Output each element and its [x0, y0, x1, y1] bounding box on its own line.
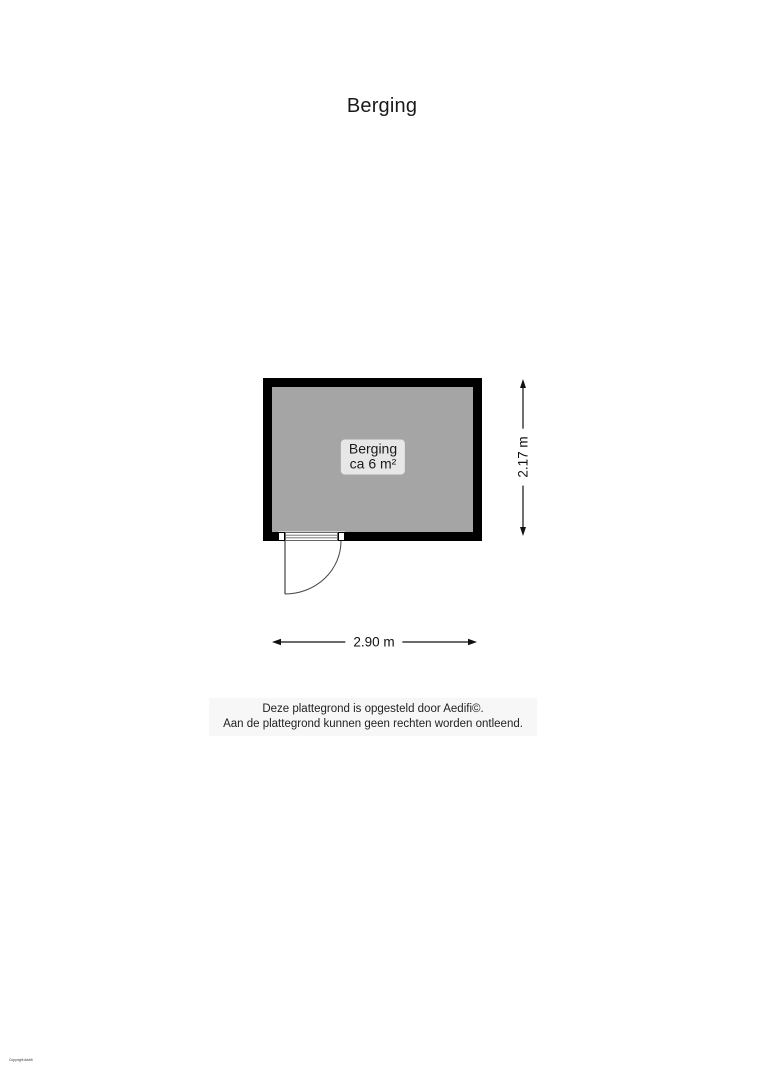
floorplan-drawing — [0, 0, 764, 1080]
room-name: Berging — [349, 442, 397, 457]
door-threshold — [286, 533, 338, 541]
dimension-width-label: 2.90 m — [345, 635, 402, 650]
disclaimer-line-1: Deze plattegrond is opgesteld door Aedif… — [223, 702, 523, 717]
room-area: ca 6 m² — [349, 457, 397, 472]
room-label: Berging ca 6 m² — [341, 440, 405, 475]
disclaimer: Deze plattegrond is opgesteld door Aedif… — [209, 698, 537, 736]
arrowhead-down-icon — [520, 527, 526, 536]
door-swing-arc — [285, 541, 341, 594]
arrowhead-left-icon — [272, 639, 281, 645]
disclaimer-line-2: Aan de plattegrond kunnen geen rechten w… — [223, 717, 523, 732]
dimension-height-label: 2.17 m — [516, 428, 531, 485]
door-jamb-left — [279, 533, 285, 541]
copyright-watermark: Copyright Aedifi — [9, 1058, 33, 1062]
door-jamb-right — [339, 533, 345, 541]
arrowhead-right-icon — [468, 639, 477, 645]
arrowhead-up-icon — [520, 379, 526, 388]
